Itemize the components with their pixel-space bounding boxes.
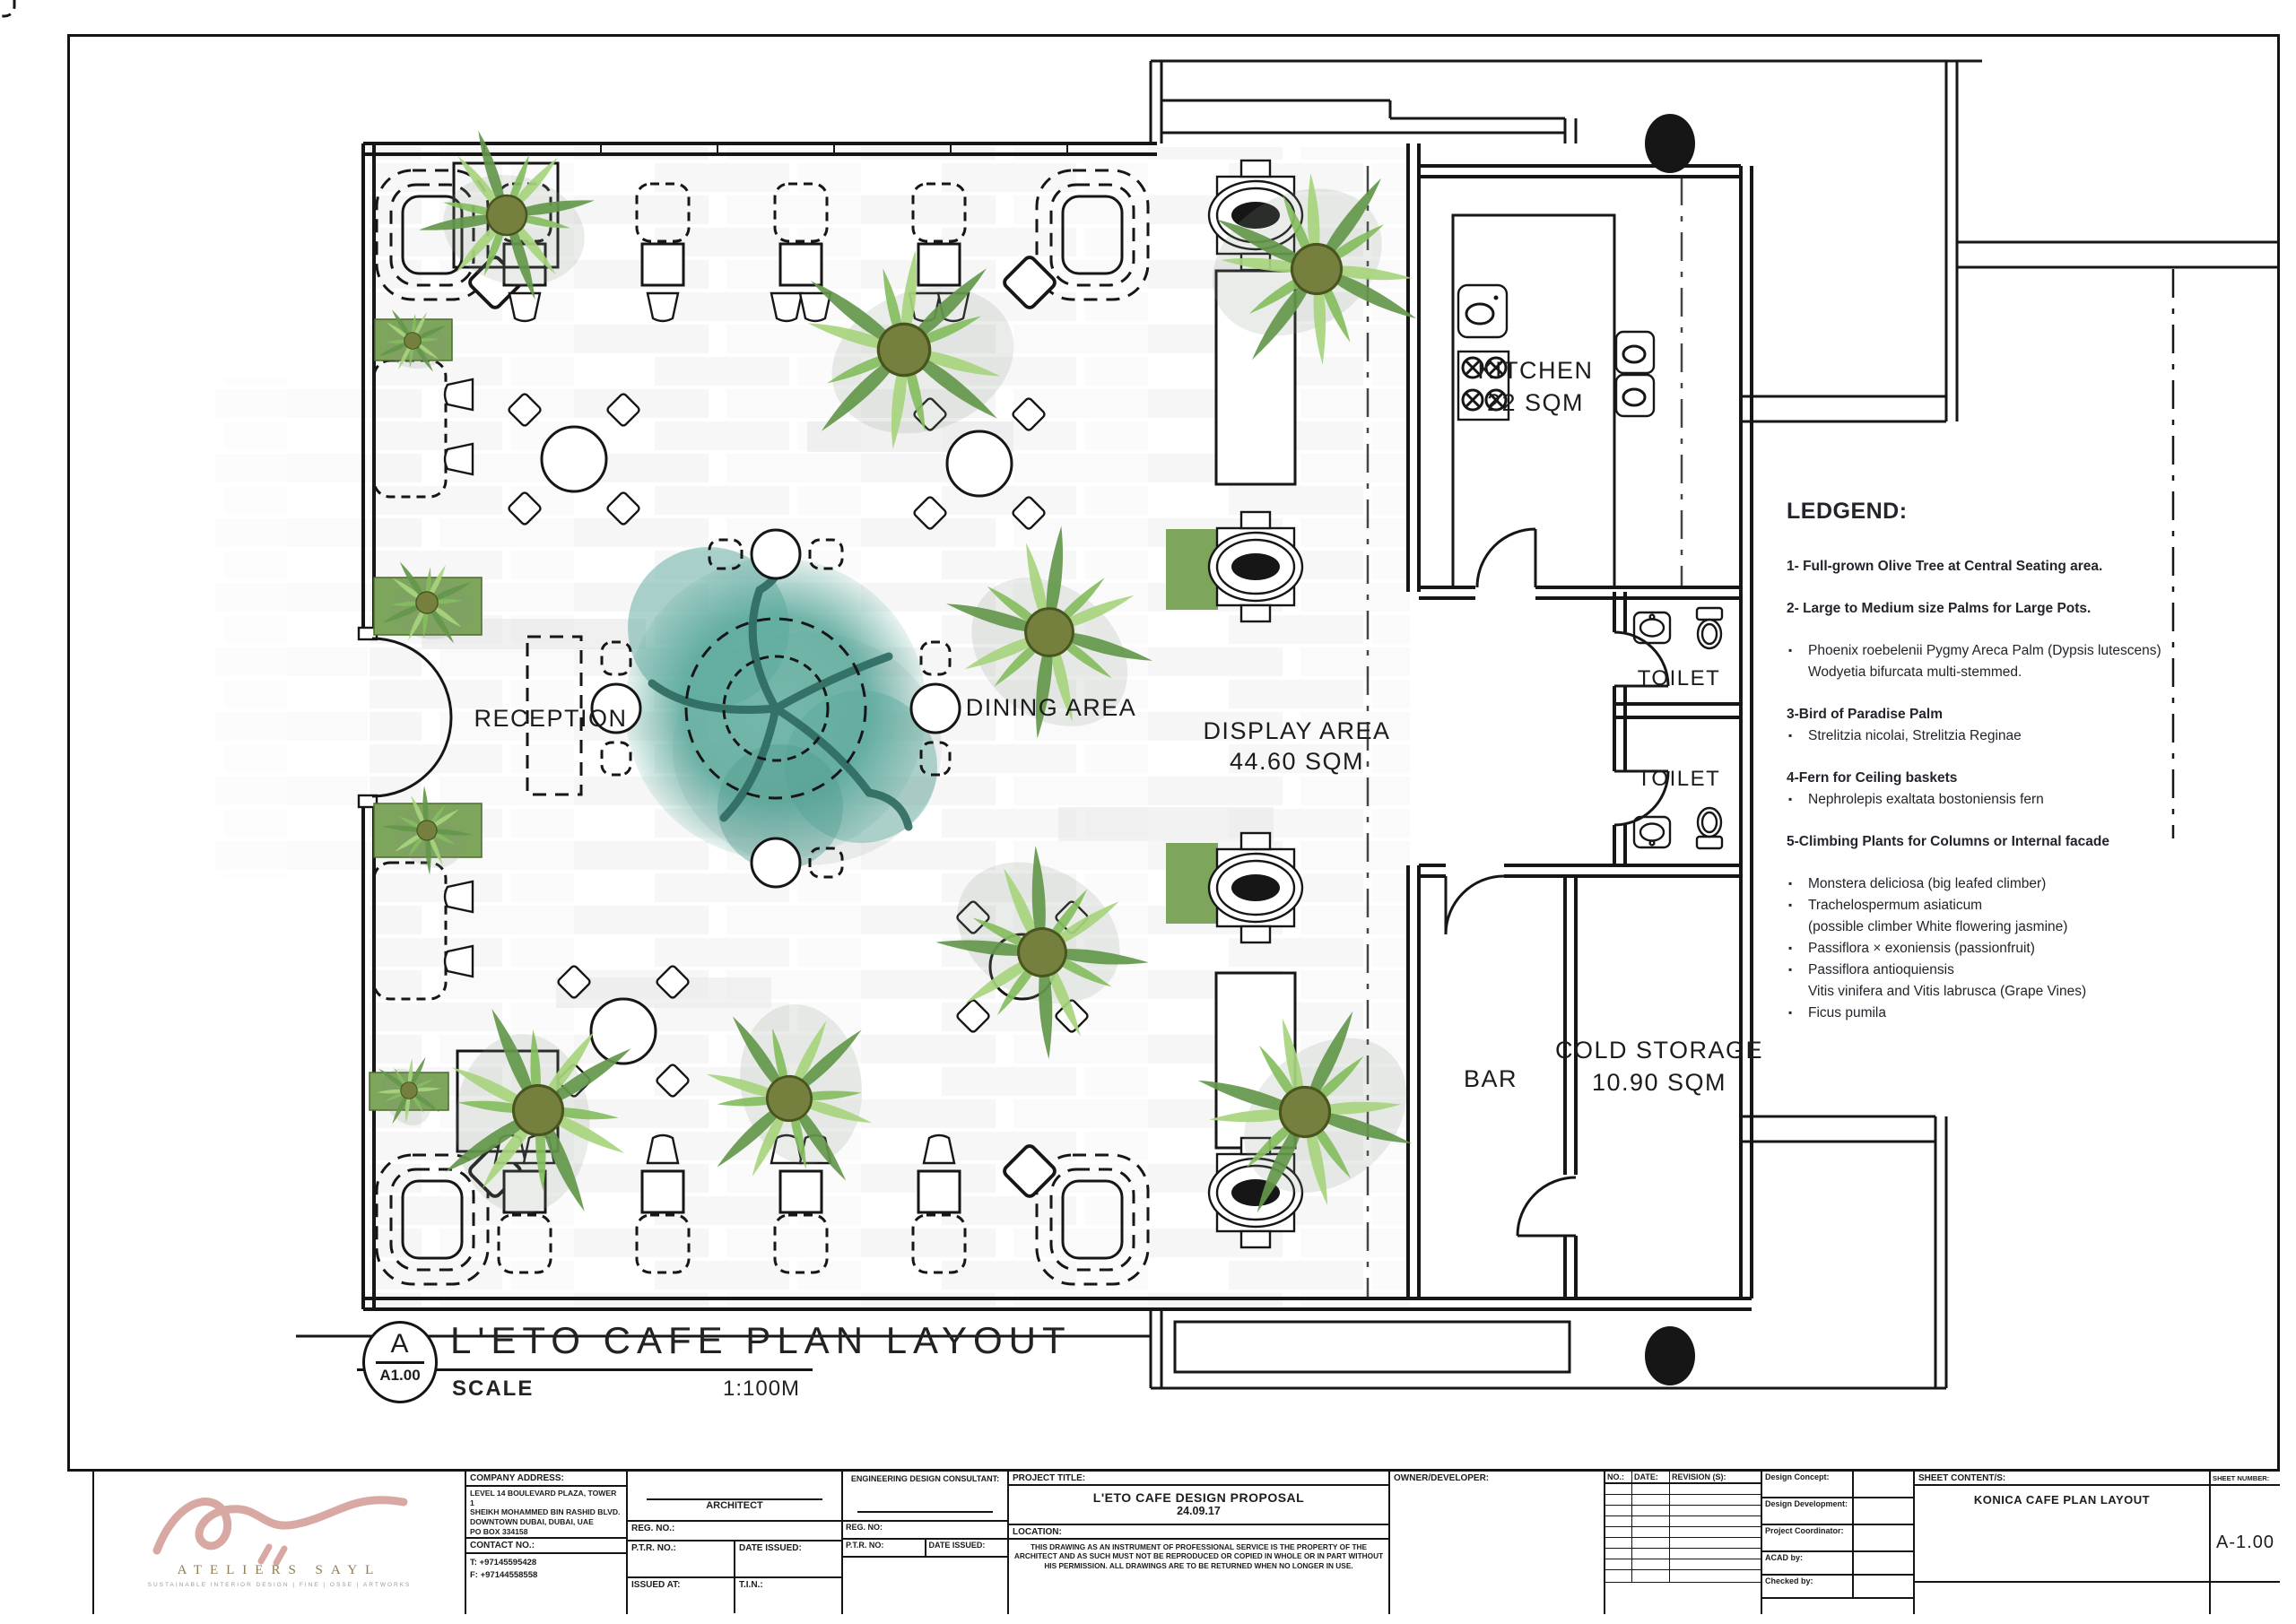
company-logo-panel: ATELIERS SAYL SUSTAINABLE INTERIOR DESIG… <box>94 1472 466 1614</box>
legend-item-1: 1- Full-grown Olive Tree at Central Seat… <box>1787 557 2235 576</box>
sheet-number-panel: SHEET NUMBER: A-1.00 <box>2211 1472 2280 1614</box>
role-value-cell <box>1852 1576 1913 1597</box>
role-value-cell <box>1852 1525 1913 1550</box>
architect-reg-no: REG. NO.: <box>628 1522 841 1541</box>
roles-empty-cell <box>1762 1599 1913 1615</box>
architect-label: ARCHITECT <box>628 1500 841 1511</box>
company-address: LEVEL 14 BOULEVARD PLAZA, TOWER 1 SHEIKH… <box>466 1487 626 1539</box>
legend-item-5c: Passiflora × exoniensis (passionfruit) <box>1787 939 2235 958</box>
revision-panel: NO.: DATE: REVISION (S): <box>1605 1472 1762 1614</box>
drawing-title: A A1.00 L'ETO CAFE PLAN LAYOUT SCALE 1:1… <box>357 1314 823 1421</box>
sheet-number: A-1.00 <box>2211 1486 2280 1583</box>
revision-date-label: DATE: <box>1632 1472 1670 1482</box>
bar-door <box>1446 876 1504 934</box>
consultant-empty-cell <box>843 1558 1007 1611</box>
role-label: Project Coordinator: <box>1762 1525 1852 1550</box>
role-value-cell <box>1852 1552 1913 1574</box>
revision-row <box>1605 1495 1761 1506</box>
kitchen-sink <box>1458 285 1507 337</box>
address-line-4: PO BOX 334158 <box>470 1527 622 1537</box>
consultant-date-issued: DATE ISSUED: <box>925 1540 1008 1556</box>
company-address-panel: COMPANY ADDRESS: LEVEL 14 BOULEVARD PLAZ… <box>466 1472 628 1614</box>
role-acad-by: ACAD by: <box>1762 1552 1913 1576</box>
detail-bubble: A A1.00 <box>362 1321 438 1403</box>
role-label: Design Concept: <box>1762 1472 1852 1497</box>
consultant-signature-line <box>857 1511 992 1513</box>
revision-row <box>1605 1549 1761 1559</box>
legend: LEDGEND: 1- Full-grown Olive Tree at Cen… <box>1787 499 2235 1025</box>
address-line-3: DOWNTOWN DUBAI, DUBAI, UAE <box>470 1517 622 1527</box>
architect-date-issued: DATE ISSUED: <box>734 1541 841 1576</box>
legend-item-2a: Phoenix roebelenii Pygmy Areca Palm (Dyp… <box>1787 641 2235 660</box>
sheet-number-label: SHEET NUMBER: <box>2211 1472 2280 1486</box>
revision-no-label: NO.: <box>1605 1472 1632 1482</box>
contact-label: CONTACT NO.: <box>466 1539 626 1554</box>
company-address-label: COMPANY ADDRESS: <box>466 1472 626 1487</box>
consultant-signature-area <box>843 1486 1007 1522</box>
project-panel: PROJECT TITLE: L'ETO CAFE DESIGN PROPOSA… <box>1009 1472 1390 1614</box>
architect-issued-at: ISSUED AT: <box>628 1578 734 1613</box>
revision-row <box>1605 1570 1761 1583</box>
label-display-area-size: 44.60 SQM <box>1230 748 1364 775</box>
architect-signature-area: ARCHITECT <box>628 1472 841 1522</box>
legend-item-5b: Trachelospermum asiaticum <box>1787 896 2235 915</box>
column-top <box>1645 114 1695 173</box>
roles-panel: Design Concept: Design Development: Proj… <box>1762 1472 1915 1614</box>
address-line-2: SHEIKH MOHAMMED BIN RASHID BLVD. <box>470 1507 622 1517</box>
cold-storage-door <box>1518 1177 1576 1236</box>
sheet-content-empty-row <box>1915 1583 2209 1597</box>
architect-ptr-no: P.T.R. NO.: <box>628 1541 734 1576</box>
contact-numbers: T: +97145595428 F: +97144558558 <box>466 1554 626 1585</box>
sheet: RECEPTION DINING AREA DISPLAY AREA 44.60… <box>0 0 2296 1624</box>
column-bottom <box>1645 1326 1695 1385</box>
revision-row <box>1605 1484 1761 1495</box>
legend-item-4: 4-Fern for Ceiling baskets <box>1787 769 2235 787</box>
consultant-ptr-no: P.T.R. NO: <box>843 1540 925 1556</box>
project-title: L'ETO CAFE DESIGN PROPOSAL <box>1009 1490 1388 1505</box>
revision-header: NO.: DATE: REVISION (S): <box>1605 1472 1761 1484</box>
scale-label: SCALE <box>452 1376 534 1402</box>
label-reception: RECEPTION <box>474 705 627 732</box>
sheet-number-empty-row <box>2211 1583 2280 1597</box>
project-title-label: PROJECT TITLE: <box>1009 1472 1388 1486</box>
logo-signature-icon <box>94 1472 466 1568</box>
architect-ptr-date: P.T.R. NO.: DATE ISSUED: <box>628 1541 841 1578</box>
legend-item-5: 5-Climbing Plants for Columns or Interna… <box>1787 832 2235 851</box>
location-label: LOCATION: <box>1009 1525 1388 1540</box>
role-design-development: Design Development: <box>1762 1498 1913 1525</box>
revision-row <box>1605 1506 1761 1516</box>
label-toilet-2: TOILET <box>1638 767 1721 791</box>
label-dining-area: DINING AREA <box>966 694 1137 721</box>
label-display-area: DISPLAY AREA <box>1203 717 1390 744</box>
revision-revisions-label: REVISION (S): <box>1670 1472 1761 1482</box>
architect-tin: T.I.N.: <box>734 1578 841 1613</box>
owner-panel: OWNER/DEVELOPER: <box>1390 1472 1605 1614</box>
sheet-content-label: SHEET CONTENT/S: <box>1915 1472 2209 1486</box>
revision-row <box>1605 1538 1761 1549</box>
label-kitchen-size: 22 SQM <box>1487 389 1584 416</box>
kitchen-door <box>1477 529 1535 587</box>
revision-row <box>1605 1516 1761 1527</box>
owner-label: OWNER/DEVELOPER: <box>1390 1472 1604 1485</box>
brand-name: ATELIERS SAYL <box>94 1563 465 1578</box>
detail-letter: A <box>365 1329 435 1359</box>
label-cold-storage-size: 10.90 SQM <box>1592 1069 1726 1096</box>
legend-item-5e: Ficus pumila <box>1787 1003 2235 1022</box>
scale-value: 1:100M <box>723 1376 800 1402</box>
top-right-corridor <box>1741 61 2280 421</box>
telephone-number: T: +97145595428 <box>470 1557 622 1569</box>
title-block: ATELIERS SAYL SUSTAINABLE INTERIOR DESIG… <box>67 1469 2280 1614</box>
role-design-concept: Design Concept: <box>1762 1472 1913 1498</box>
legend-item-5d2: Vitis vinifera and Vitis labrusca (Grape… <box>1787 982 2235 1001</box>
role-value-cell <box>1852 1498 1913 1524</box>
legend-item-5d: Passiflora antioquiensis <box>1787 960 2235 979</box>
legend-item-5a: Monstera deliciosa (big leafed climber) <box>1787 874 2235 893</box>
legend-item-2: 2- Large to Medium size Palms for Large … <box>1787 599 2235 618</box>
architect-panel: ARCHITECT REG. NO.: P.T.R. NO.: DATE ISS… <box>628 1472 843 1614</box>
role-value-cell <box>1852 1472 1913 1497</box>
revision-row <box>1605 1559 1761 1570</box>
project-date: 24.09.17 <box>1009 1505 1388 1517</box>
brand-tagline: SUSTAINABLE INTERIOR DESIGN | FINE | OSS… <box>94 1582 465 1588</box>
sheet-content-panel: SHEET CONTENT/S: KONICA CAFE PLAN LAYOUT <box>1915 1472 2211 1614</box>
plan-title-text: L'ETO CAFE PLAN LAYOUT <box>450 1319 1072 1362</box>
label-toilet-1: TOILET <box>1638 666 1721 690</box>
copyright-disclaimer: THIS DRAWING AS AN INSTRUMENT OF PROFESS… <box>1009 1540 1388 1573</box>
kitchen-prep-sinks <box>1616 332 1654 416</box>
consultant-panel: ENGINEERING DESIGN CONSULTANT: REG. NO: … <box>843 1472 1009 1614</box>
role-label: ACAD by: <box>1762 1552 1852 1574</box>
detail-bubble-divider <box>376 1361 425 1364</box>
consultant-label: ENGINEERING DESIGN CONSULTANT: <box>843 1472 1007 1486</box>
legend-item-3a: Strelitzia nicolai, Strelitzia Reginae <box>1787 726 2235 745</box>
legend-item-5b2: (possible climber White flowering jasmin… <box>1787 917 2235 936</box>
fax-number: F: +97144558558 <box>470 1569 622 1582</box>
project-title-box: L'ETO CAFE DESIGN PROPOSAL 24.09.17 <box>1009 1486 1388 1525</box>
sheet-content: KONICA CAFE PLAN LAYOUT <box>1915 1486 2209 1583</box>
label-cold-storage: COLD STORAGE <box>1555 1037 1763 1064</box>
consultant-reg-no: REG. NO: <box>843 1522 1007 1540</box>
architect-issued-tin: ISSUED AT: T.I.N.: <box>628 1578 841 1613</box>
legend-item-2b: Wodyetia bifurcata multi-stemmed. <box>1787 663 2235 682</box>
legend-title: LEDGEND: <box>1787 499 2235 525</box>
top-vestibule <box>1151 61 1982 143</box>
address-line-1: LEVEL 14 BOULEVARD PLAZA, TOWER 1 <box>470 1489 622 1507</box>
legend-item-3: 3-Bird of Paradise Palm <box>1787 705 2235 724</box>
role-checked-by: Checked by: <box>1762 1576 1913 1599</box>
consultant-ptr-date: P.T.R. NO: DATE ISSUED: <box>843 1540 1007 1558</box>
role-label: Design Development: <box>1762 1498 1852 1524</box>
role-label: Checked by: <box>1762 1576 1852 1597</box>
detail-sheet-ref: A1.00 <box>365 1367 435 1385</box>
titleblock-margin-cell <box>67 1472 94 1614</box>
label-kitchen: KITCHEN <box>1477 357 1593 384</box>
revision-row <box>1605 1527 1761 1538</box>
label-bar: BAR <box>1464 1065 1518 1092</box>
legend-item-4a: Nephrolepis exaltata bostoniensis fern <box>1787 790 2235 809</box>
role-project-coordinator: Project Coordinator: <box>1762 1525 1913 1552</box>
